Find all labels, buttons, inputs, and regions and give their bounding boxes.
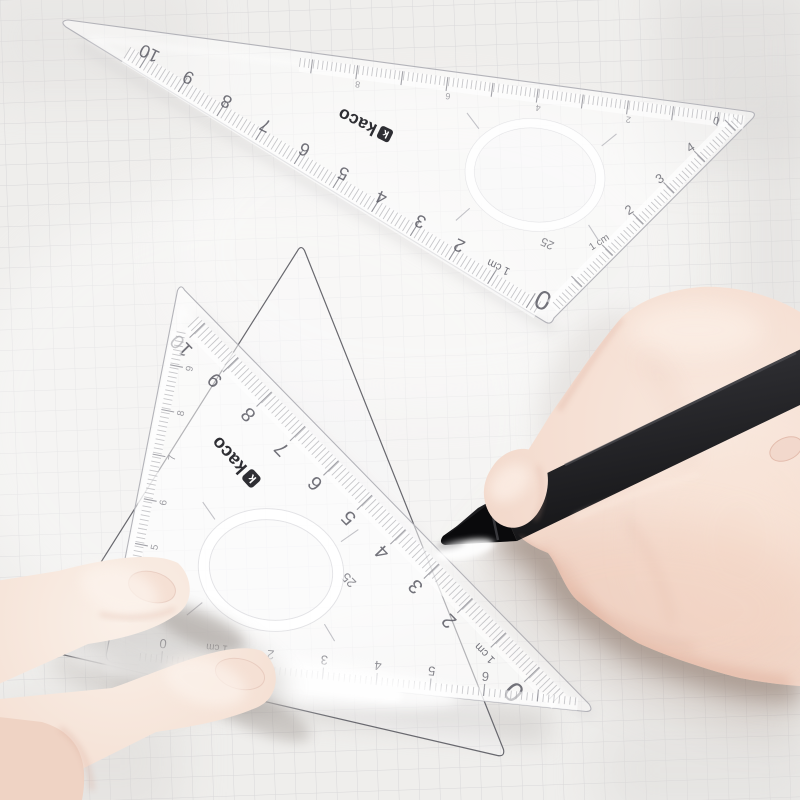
- svg-text:5: 5: [427, 663, 436, 679]
- svg-text:6: 6: [481, 669, 490, 685]
